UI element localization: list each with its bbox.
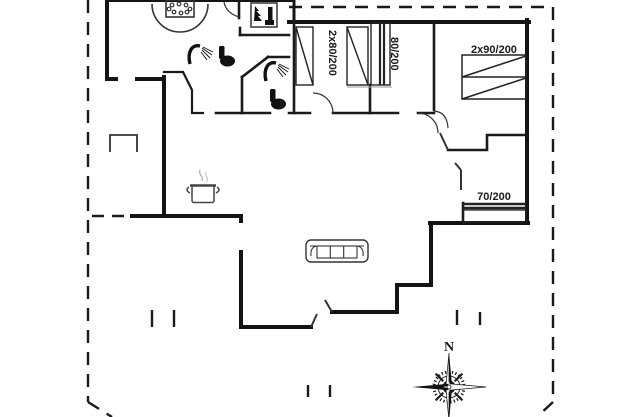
whirlpool-icon (152, 0, 208, 32)
floor-plan-svg: 2x80/200 80/200 2x90/200 70/200 (0, 0, 640, 417)
bed-label-80-200: 80/200 (388, 37, 400, 71)
single-bed-70 (463, 204, 526, 222)
double-bed-2x90 (462, 55, 526, 99)
windbreak (110, 135, 137, 152)
compass-rose-icon (412, 353, 486, 417)
bunk-bed-80 (371, 23, 390, 85)
sofa-icon (306, 240, 368, 262)
bed-labels: 2x80/200 80/200 2x90/200 70/200 (326, 30, 517, 203)
shower-icon (265, 63, 289, 81)
exterior-walls (107, 0, 529, 327)
bed-label-70-200: 70/200 (477, 191, 511, 203)
cooking-pot-icon (187, 170, 219, 203)
toilet-icon (219, 46, 235, 67)
bed-label-2x80-200: 2x80/200 (326, 30, 338, 76)
shower-icon (189, 46, 213, 64)
door-swings (224, 2, 461, 327)
fireplace-stove-icon (251, 3, 277, 27)
compass-north-label: N (444, 340, 454, 355)
floor-plan: 2x80/200 80/200 2x90/200 70/200 (0, 0, 640, 417)
toilet-icon (270, 89, 286, 110)
twin-beds-2x80 (296, 27, 392, 87)
terrace-post-marks (152, 310, 480, 397)
bed-label-2x90-200: 2x90/200 (471, 44, 517, 56)
